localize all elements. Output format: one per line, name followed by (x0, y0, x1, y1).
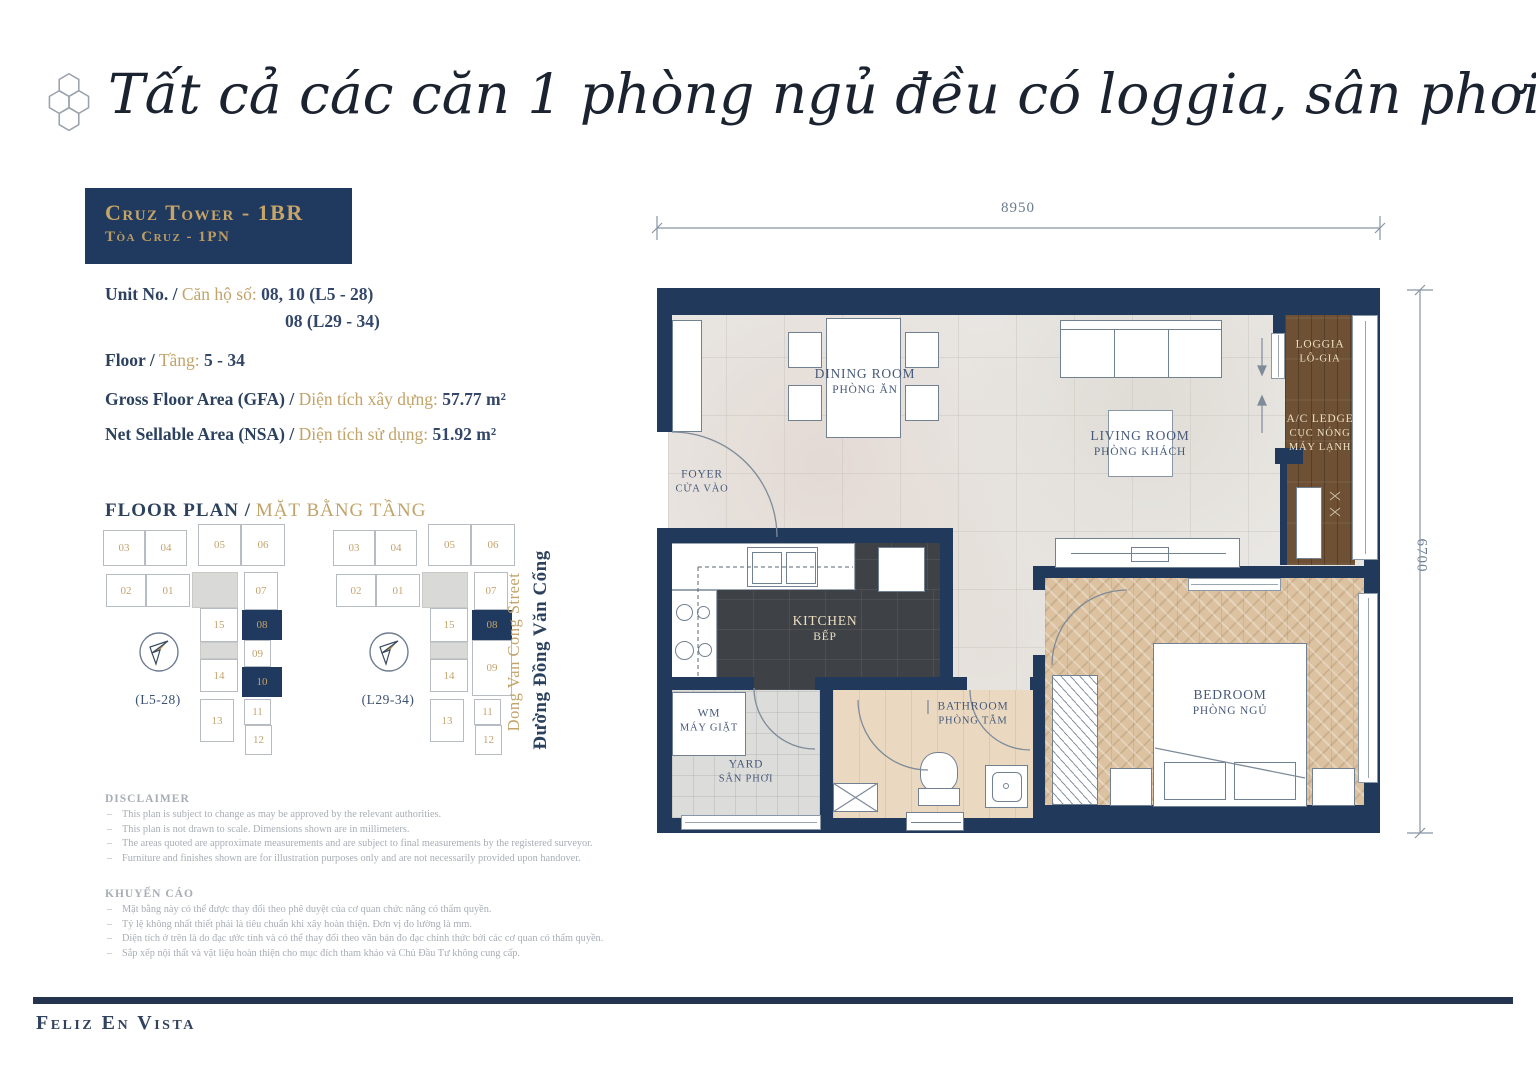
tower-name-en: Cruz Tower - 1BR (105, 200, 352, 226)
sofa (1060, 320, 1222, 378)
miniplan-unit-08-highlighted: 08 (242, 610, 282, 640)
compass-icon (367, 630, 411, 674)
spec-unit-no: Unit No. / Căn hộ số: 08, 10 (L5 - 28) (105, 284, 373, 305)
miniplan2-unit-11: 11 (474, 699, 501, 725)
spec-gfa: Gross Floor Area (GFA) / Diện tích xây d… (105, 389, 506, 410)
miniplan2-unit-15: 15 (430, 608, 468, 642)
miniplan2-unit-01: 01 (376, 574, 420, 607)
disclaimer-list: This plan is subject to change as may be… (105, 808, 645, 866)
sink-basin-left (752, 552, 782, 584)
refrigerator (878, 547, 925, 592)
service-shaft (833, 783, 878, 812)
stove-burner (675, 641, 694, 660)
miniplan-unit-02: 02 (106, 574, 146, 607)
miniplan-range-label: (L5-28) (98, 692, 218, 708)
footer-brand: Feliz En Vista (36, 1012, 196, 1035)
window-yard-bottom (681, 815, 821, 830)
ac-outdoor-unit (1296, 487, 1322, 559)
miniplan2-unit-04: 04 (375, 530, 417, 566)
room-label-living: LIVING ROOM PHÒNG KHÁCH (1090, 427, 1189, 459)
feliz-hexagon-logo-icon (40, 72, 98, 138)
miniplan2-unit-05: 05 (428, 524, 471, 566)
stove-burner (676, 604, 693, 621)
advisory-heading: KHUYẾN CÁO (105, 888, 645, 900)
pillow (1234, 762, 1296, 800)
wall-loggia-left-top (1273, 313, 1285, 335)
tv-console (1055, 538, 1240, 568)
room-label-loggia: LOGGIA LÔ-GIA (1296, 338, 1345, 367)
dimension-width: 8950 (988, 200, 1048, 217)
wall-bedroom-left-stub (1033, 578, 1045, 590)
sofa-divider (1168, 329, 1169, 377)
compass-icon (137, 630, 181, 674)
bathroom-sink (985, 765, 1028, 808)
disclaimer-heading: DISCLAIMER (105, 793, 645, 805)
stove-burner (697, 606, 710, 619)
miniplan-l29-34: 03 04 05 06 02 01 07 15 08 09 14 11 13 1… (322, 522, 522, 767)
window-bedroom-right (1358, 593, 1378, 783)
kitchen-stove-counter (670, 590, 717, 690)
miniplan2-unit-02: 02 (336, 574, 376, 607)
tower-title-box: Cruz Tower - 1BR Tòa Cruz - 1PN (85, 188, 352, 264)
miniplan-l5-28: 03 04 05 06 02 01 07 15 08 09 14 10 11 1… (92, 522, 292, 767)
sofa-divider (1114, 329, 1115, 377)
disclaimer-block: DISCLAIMER This plan is subject to chang… (105, 793, 645, 866)
sink-drain (1003, 783, 1009, 789)
sink-basin-right (786, 552, 816, 584)
main-floorplan: 8950 6700 (650, 200, 1450, 865)
wall-kitchen-top (657, 528, 953, 543)
bed (1153, 643, 1307, 807)
miniplan-unit-11: 11 (244, 699, 271, 725)
room-label-yard: YARD SÂN PHƠI (719, 758, 774, 787)
footer-divider (33, 997, 1513, 1004)
bathroom-threshold (906, 812, 964, 831)
miniplan2-range-label: (L29-34) (328, 692, 448, 708)
wall-loggia-left-lower (1280, 464, 1287, 565)
miniplan2-corridor (430, 642, 468, 659)
dimension-height: 6700 (1413, 530, 1430, 582)
nightstand (1312, 768, 1355, 806)
advisory-item: Diện tích ở trên là do đạc ước tính và c… (105, 932, 645, 947)
room-label-dining: DINING ROOM PHÒNG ĂN (815, 365, 916, 397)
tower-name-vi: Tòa Cruz - 1PN (105, 226, 352, 248)
miniplan-unit-03: 03 (103, 530, 145, 566)
advisory-list: Mặt bằng này có thể được thay đổi theo p… (105, 903, 645, 961)
miniplan-unit-06: 06 (241, 524, 285, 566)
miniplan2-unit-14: 14 (430, 659, 468, 692)
miniplan2-core (422, 572, 468, 608)
disclaimer-item: Furniture and finishes shown are for ill… (105, 852, 645, 867)
tv-set (1131, 547, 1169, 562)
miniplan-unit-04: 04 (145, 530, 187, 566)
street-name-en: Dong Van Cong Street (504, 542, 522, 762)
toilet-tank (918, 788, 960, 806)
wall-bottom-bedroom (1035, 805, 1380, 833)
room-label-bathroom: BATHROOM PHÒNG TẮM (938, 700, 1009, 729)
nightstand (1110, 768, 1152, 806)
wall-bedroom-left (1033, 655, 1045, 818)
miniplan-unit-05: 05 (198, 524, 241, 566)
room-label-kitchen: KITCHEN BẾP (793, 612, 858, 644)
advisory-item: Mặt bằng này có thể được thay đổi theo p… (105, 903, 645, 918)
room-label-wm: WM MÁY GIẶT (680, 707, 738, 736)
miniplan-corridor (200, 642, 238, 659)
miniplan-unit-07: 07 (244, 572, 278, 610)
stove-burner (698, 643, 712, 657)
wall-yard-bathroom-divider (820, 677, 833, 833)
disclaimer-item: The areas quoted are approximate measure… (105, 837, 645, 852)
street-name-vi: Đường Đồng Văn Cống (530, 525, 552, 775)
floor-plan-heading: FLOOR PLAN / MẶT BẰNG TẦNG (105, 500, 426, 522)
miniplan-unit-15: 15 (200, 608, 238, 642)
wall-bathroom-top (815, 677, 967, 690)
wall-left-upper (657, 315, 672, 432)
advisory-item: Sắp xếp nội thất và vật liệu hoàn thiện … (105, 947, 645, 962)
room-label-foyer: FOYER CỬA VÀO (676, 468, 729, 497)
bedroom-wardrobe (1052, 675, 1098, 805)
window-bedroom-top (1188, 578, 1281, 591)
toilet-bowl (920, 752, 958, 792)
disclaimer-item: This plan is not drawn to scale. Dimensi… (105, 823, 645, 838)
kitchen-sink (747, 547, 818, 587)
miniplan2-unit-07: 07 (474, 572, 508, 610)
disclaimer-item: This plan is subject to change as may be… (105, 808, 645, 823)
wall-top (657, 288, 1380, 315)
room-label-bedroom: BEDROOM PHÒNG NGỦ (1193, 686, 1268, 718)
brochure-page: { "header": { "title": "Tất cả các căn 1… (0, 0, 1536, 1075)
wall-kitchen-right (940, 528, 953, 690)
pillow (1164, 762, 1226, 800)
miniplan-core (192, 572, 238, 608)
dining-chair (788, 332, 822, 368)
foyer-wardrobe (672, 320, 702, 432)
threshold-line (911, 822, 961, 823)
advisory-item: Tỷ lệ không nhất thiết phải là tiêu chuẩ… (105, 918, 645, 933)
window-living-loggia (1271, 333, 1285, 379)
sofa-back-line (1061, 329, 1221, 330)
spec-unit-no-line2: 08 (L29 - 34) (105, 311, 380, 332)
miniplan-unit-14: 14 (200, 659, 238, 692)
miniplan-unit-01: 01 (146, 574, 190, 607)
spec-floor: Floor / Tầng: 5 - 34 (105, 350, 245, 371)
miniplan-unit-09: 09 (244, 640, 271, 667)
miniplan2-unit-12: 12 (475, 725, 502, 755)
page-title: Tất cả các căn 1 phòng ngủ đều có loggia… (108, 62, 1528, 126)
spec-nsa: Net Sellable Area (NSA) / Diện tích sử d… (105, 424, 496, 445)
room-label-ac-ledge: A/C LEDGE CỤC NÓNG MÁY LẠNH (1283, 412, 1357, 454)
wall-kitchen-bottom-left (657, 677, 754, 690)
miniplan-unit-12: 12 (245, 725, 272, 755)
advisory-block: KHUYẾN CÁO Mặt bằng này có thể được thay… (105, 888, 645, 961)
miniplan-unit-10-highlighted: 10 (242, 667, 282, 697)
miniplan2-unit-03: 03 (333, 530, 375, 566)
dining-chair (905, 332, 939, 368)
